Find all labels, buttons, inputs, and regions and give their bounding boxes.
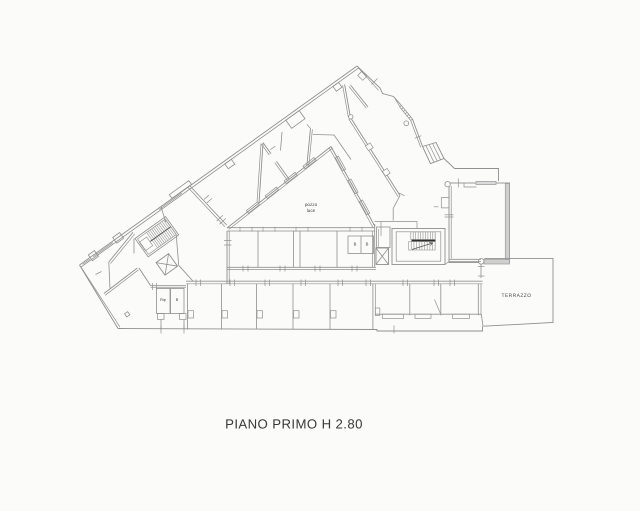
svg-text:B: B xyxy=(366,241,369,246)
svg-text:pozzo: pozzo xyxy=(305,202,318,207)
svg-text:PIANO PRIMO H 2.80: PIANO PRIMO H 2.80 xyxy=(225,417,363,432)
svg-text:Rip: Rip xyxy=(160,298,166,302)
svg-text:B: B xyxy=(354,241,357,246)
svg-text:TERRAZZO: TERRAZZO xyxy=(502,293,532,299)
svg-text:luce: luce xyxy=(307,208,316,213)
svg-text:B: B xyxy=(176,298,179,302)
